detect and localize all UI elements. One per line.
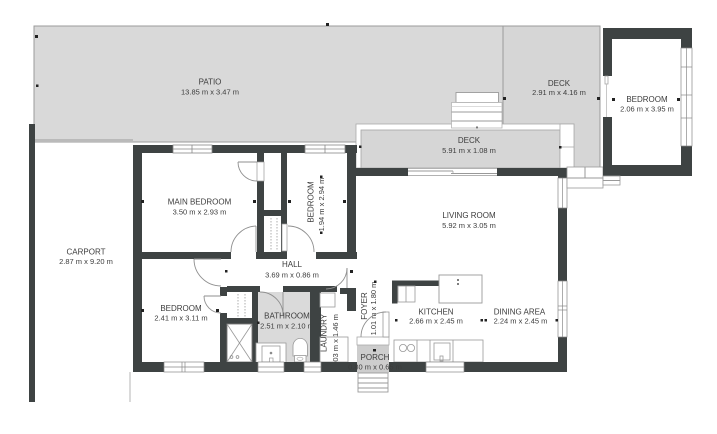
svg-text:DINING AREA: DINING AREA <box>494 308 546 317</box>
svg-text:0.80 m x 0.65 m: 0.80 m x 0.65 m <box>348 362 402 371</box>
svg-text:DECK: DECK <box>548 79 571 88</box>
svg-text:2.06 m x 3.95 m: 2.06 m x 3.95 m <box>620 105 674 114</box>
svg-text:2.66 m x 2.45 m: 2.66 m x 2.45 m <box>409 316 463 325</box>
svg-text:LAUNDRY: LAUNDRY <box>320 313 329 352</box>
svg-text:2.87 m x 9.20 m: 2.87 m x 9.20 m <box>59 257 113 266</box>
svg-text:LIVING ROOM: LIVING ROOM <box>442 211 496 220</box>
svg-text:PORCH: PORCH <box>361 353 390 362</box>
svg-text:5.91 m x 1.08 m: 5.91 m x 1.08 m <box>442 146 496 155</box>
svg-text:13.85 m x 3.47 m: 13.85 m x 3.47 m <box>181 88 239 97</box>
svg-text:DECK: DECK <box>458 136 481 145</box>
svg-text:2.24 m x 2.45 m: 2.24 m x 2.45 m <box>494 316 548 325</box>
svg-text:BEDROOM: BEDROOM <box>307 181 316 223</box>
svg-text:2.41 m x 3.11 m: 2.41 m x 3.11 m <box>154 314 207 323</box>
svg-text:3.50 m x 2.93 m: 3.50 m x 2.93 m <box>173 207 227 216</box>
svg-text:CARPORT: CARPORT <box>67 248 106 257</box>
svg-text:FOYER: FOYER <box>360 292 369 320</box>
svg-text:BEDROOM: BEDROOM <box>160 304 202 313</box>
svg-text:3.69 m x 0.86 m: 3.69 m x 0.86 m <box>265 270 319 279</box>
svg-text:2.91 m x 4.16 m: 2.91 m x 4.16 m <box>532 88 586 97</box>
svg-text:1.94 m x 2.94 m: 1.94 m x 2.94 m <box>317 178 326 232</box>
svg-text:BATHROOM: BATHROOM <box>264 312 310 321</box>
svg-text:MAIN BEDROOM: MAIN BEDROOM <box>168 198 232 207</box>
svg-text:PATIO: PATIO <box>199 78 222 87</box>
svg-text:1.03 m x 1.46 m: 1.03 m x 1.46 m <box>331 314 340 368</box>
svg-text:2.51 m x 2.10 m: 2.51 m x 2.10 m <box>260 321 314 330</box>
svg-text:5.92 m x 3.05 m: 5.92 m x 3.05 m <box>442 221 496 230</box>
svg-text:KITCHEN: KITCHEN <box>418 308 453 317</box>
svg-text:HALL: HALL <box>282 260 303 269</box>
svg-text:BEDROOM: BEDROOM <box>626 95 668 104</box>
svg-text:1.01 m x 1.80 m: 1.01 m x 1.80 m <box>369 282 378 336</box>
